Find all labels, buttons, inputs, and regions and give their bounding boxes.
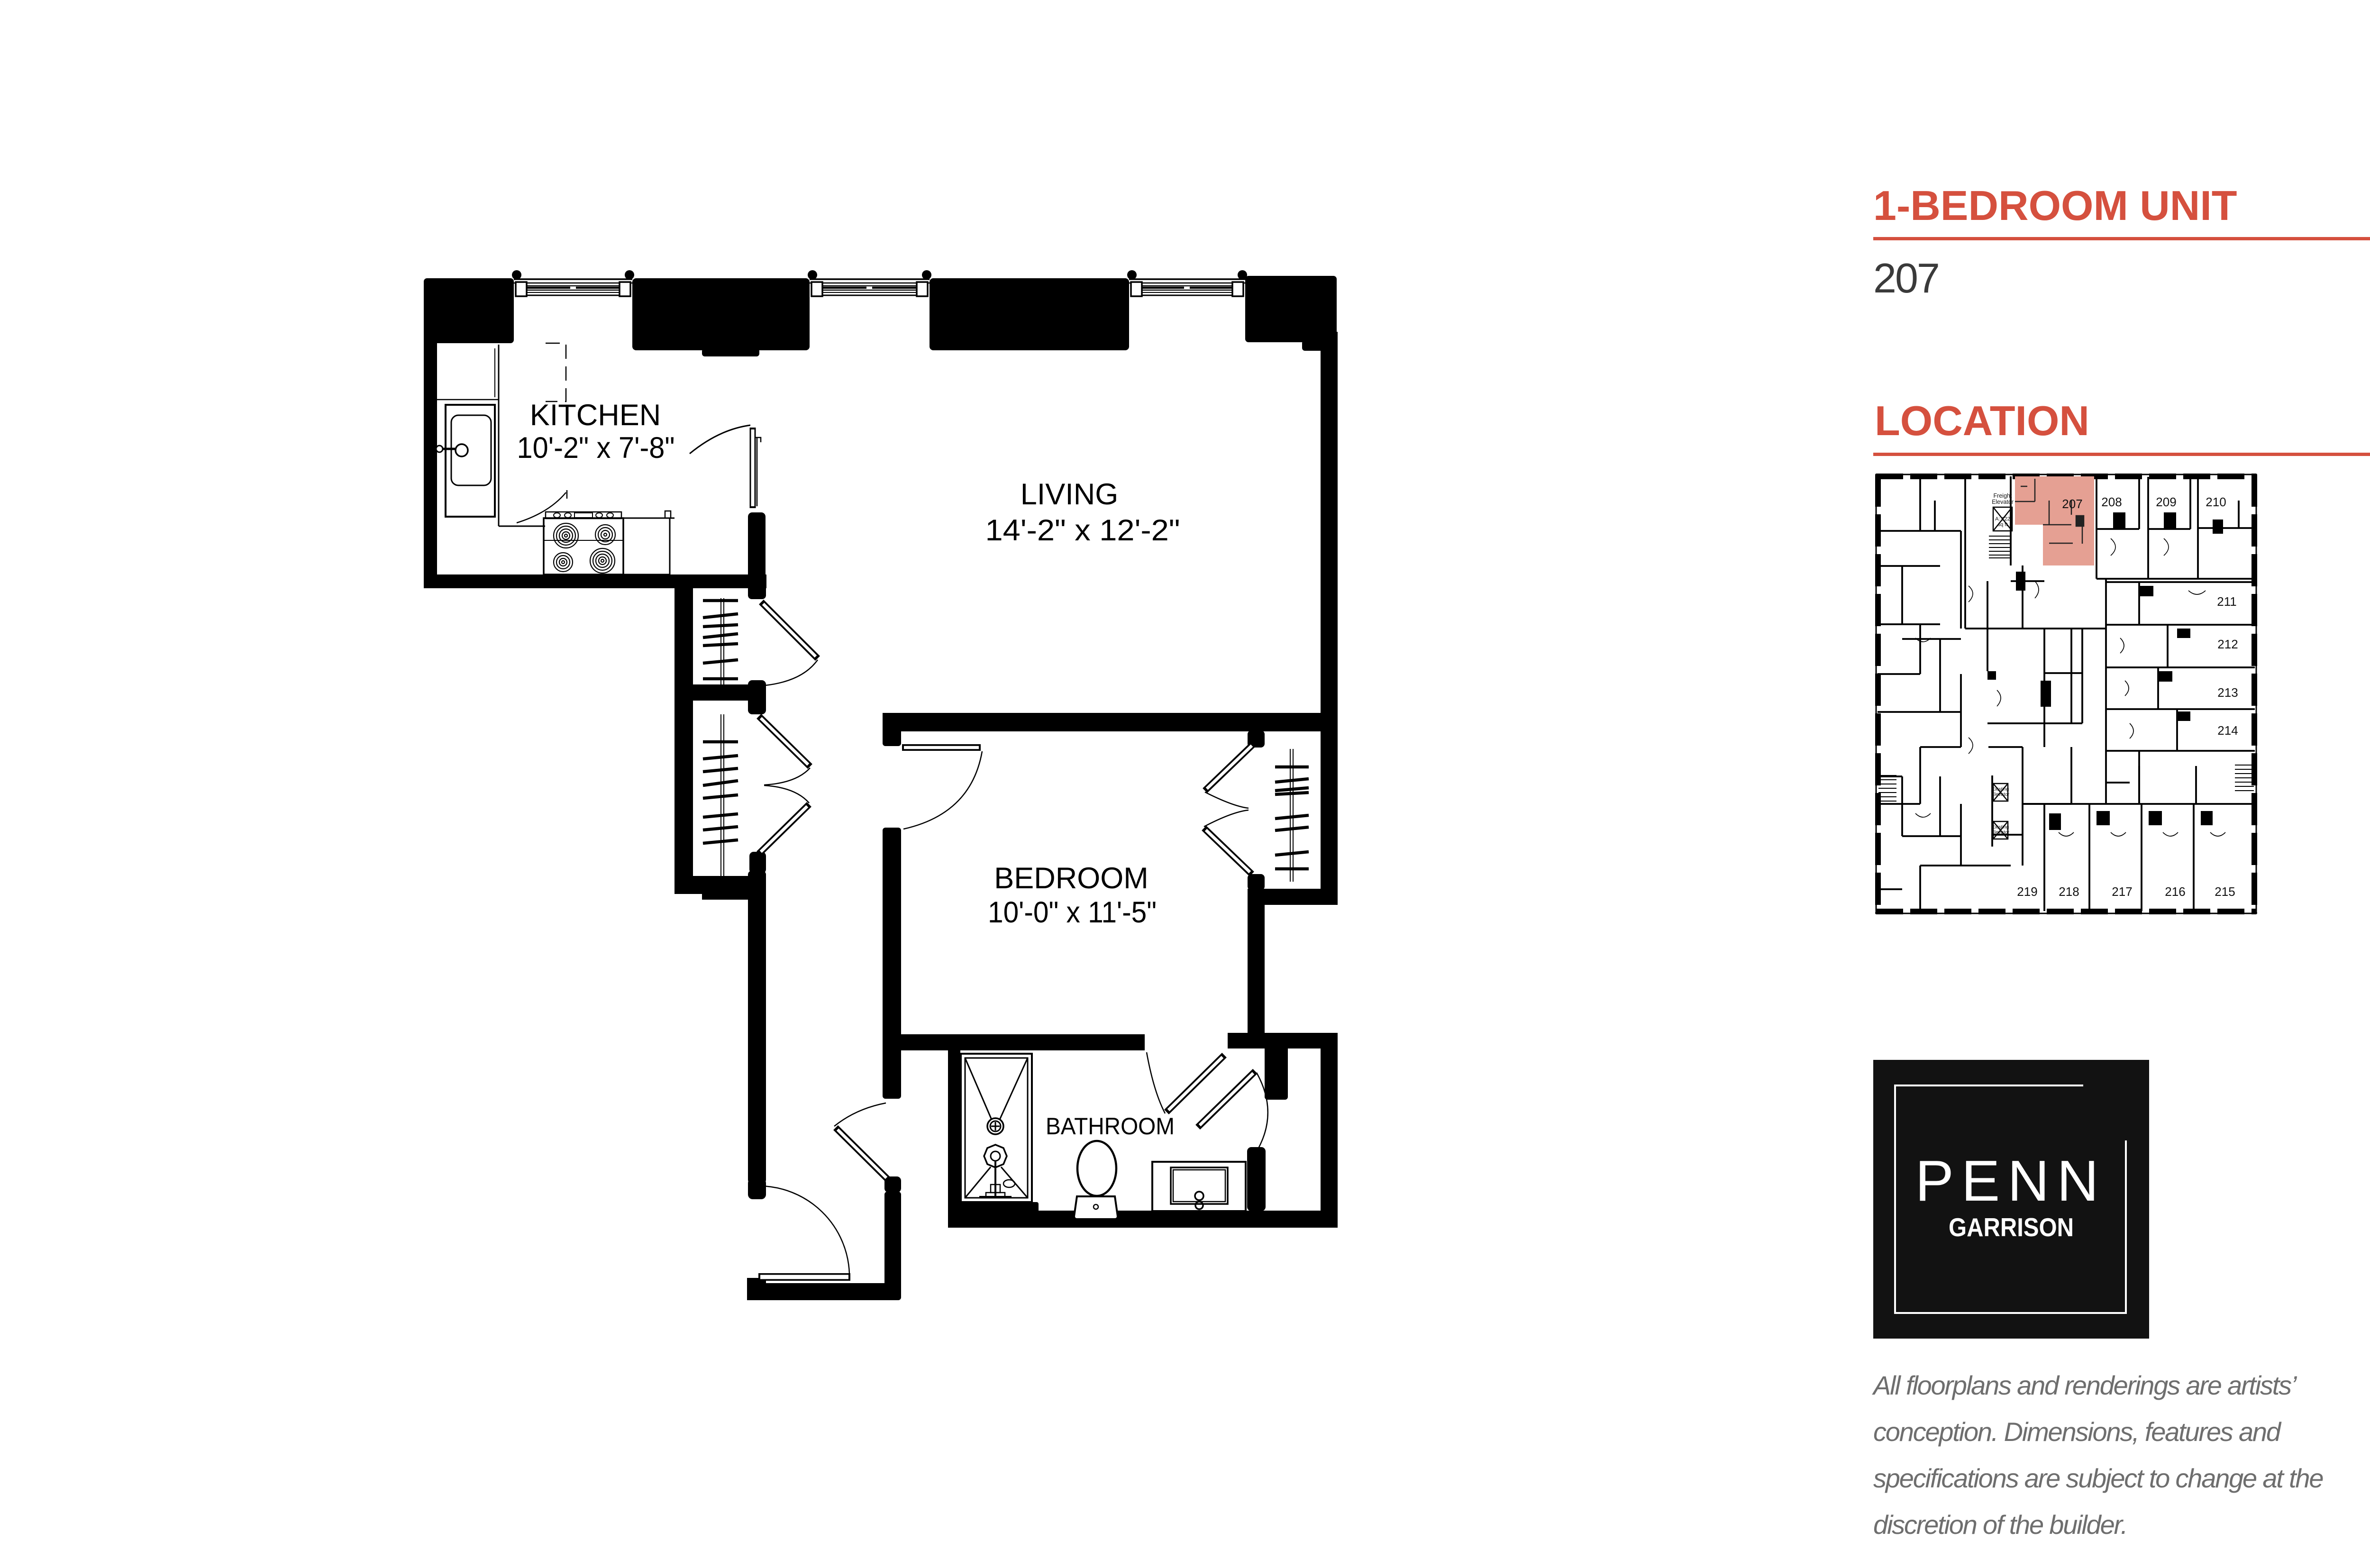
svg-text:208: 208	[2101, 495, 2122, 509]
svg-text:10'-0" x 11'-5": 10'-0" x 11'-5"	[988, 896, 1157, 929]
svg-text:213: 213	[2217, 685, 2238, 700]
svg-text:Elevator: Elevator	[1991, 830, 2010, 835]
svg-text:A: 122: A: 122	[1995, 516, 2010, 522]
svg-text:LIVING: LIVING	[1021, 478, 1119, 511]
svg-text:218: 218	[2059, 884, 2079, 899]
svg-text:217: 217	[2112, 884, 2132, 899]
svg-text:210: 210	[2206, 495, 2226, 509]
svg-text:sq ft: sq ft	[1998, 522, 2008, 528]
svg-text:207: 207	[2062, 497, 2082, 511]
svg-text:GARRISON: GARRISON	[1949, 1212, 2074, 1242]
svg-text:Elevator: Elevator	[1992, 499, 2014, 505]
svg-text:BATHROOM: BATHROOM	[1046, 1113, 1175, 1140]
svg-text:Freight: Freight	[1994, 492, 2012, 499]
svg-text:PENN: PENN	[1915, 1149, 2106, 1213]
svg-text:215: 215	[2215, 884, 2235, 899]
svg-text:211: 211	[2217, 594, 2236, 609]
svg-text:216: 216	[2165, 884, 2185, 899]
svg-text:Elevator: Elevator	[1991, 792, 2010, 797]
svg-text:10'-2" x 7'-8": 10'-2" x 7'-8"	[517, 431, 675, 465]
svg-text:212: 212	[2217, 637, 2238, 651]
svg-text:14'-2" x 12'-2": 14'-2" x 12'-2"	[985, 514, 1180, 547]
svg-text:BEDROOM: BEDROOM	[994, 862, 1149, 895]
svg-text:KITCHEN: KITCHEN	[530, 399, 661, 432]
svg-text:219: 219	[2017, 884, 2037, 899]
svg-text:209: 209	[2156, 495, 2176, 509]
svg-text:214: 214	[2217, 723, 2238, 738]
